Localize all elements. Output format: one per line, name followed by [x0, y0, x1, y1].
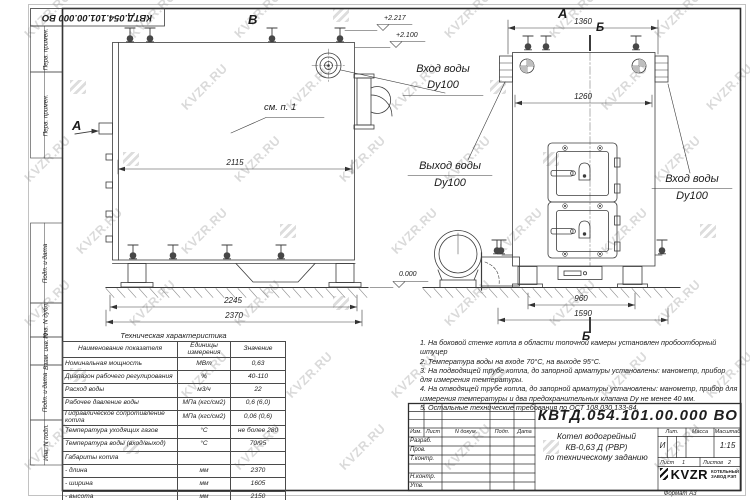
sig-prov: Пров.	[410, 447, 426, 453]
product-line-3: по техническому заданию	[537, 452, 656, 463]
spec-cell-9-2: 1605	[231, 478, 286, 491]
dim-2245: 2245	[208, 296, 258, 305]
spec-row-4: Гидравлическое сопротивление котлаМПа (к…	[63, 410, 286, 425]
elevation-2100: +2.100	[396, 32, 418, 39]
valve-icon	[631, 36, 641, 50]
spec-header-1: Единицы измерения	[178, 342, 231, 358]
spec-cell-4-2: 0,06 (0,6)	[231, 410, 286, 425]
th-podp: Подп.	[490, 429, 514, 435]
elevation-0000: 0.000	[399, 271, 417, 278]
valve-icon	[657, 240, 667, 254]
kvzr-logo-text: KVZR	[671, 467, 708, 482]
dimensions-and-symbols	[106, 20, 673, 326]
spec-header-0: Наименование показателя	[63, 342, 178, 358]
sig-tkontr: Т.контр.	[410, 456, 434, 462]
spec-cell-9-0: - ширина	[63, 478, 178, 491]
spec-row-10: - высотамм2150	[63, 491, 286, 500]
kvzr-logo-bars-icon	[660, 468, 668, 480]
sig-nkontr: Н.контр.	[410, 474, 435, 480]
spec-table-title: Техническая характеристика	[62, 331, 285, 340]
spec-row-0: Номинальная мощностьМВт0,63	[63, 358, 286, 371]
spec-cell-1-2: 40-110	[231, 371, 286, 384]
spec-cell-5-1: °С	[178, 425, 231, 438]
spec-cell-4-0: Гидравлическое сопротивление котла	[63, 410, 178, 425]
note-4: 4. На отводящей трубе котла, до запорной…	[420, 384, 738, 403]
outlet-dn: Dy100	[408, 177, 492, 189]
th-list: Лист	[424, 429, 442, 435]
blower-linework	[435, 231, 520, 291]
spec-cell-3-0: Рабочее давление воды	[63, 397, 178, 410]
elevation-2217: +2.217	[384, 15, 406, 22]
valve-icon	[128, 245, 138, 259]
top-stamp-text: КВТД.054.101.00.000 ВО	[42, 12, 152, 23]
spec-row-5: Температура уходящих газов°Сне более 280	[63, 425, 286, 438]
spec-row-6: Температура воды (вход/выход)°С70/95	[63, 438, 286, 451]
valve-icon	[222, 245, 232, 259]
titleblock-product-name: Котел водогрейный КВ-0,63 Д (РВР) по тех…	[537, 431, 656, 463]
dim-2370: 2370	[209, 311, 259, 320]
top-stamp-doc-number: КВТД.054.101.00.000 ВО	[30, 8, 165, 26]
dim-1360: 1360	[558, 17, 608, 26]
spec-row-1: Диапазон рабочего регулирования%40-110	[63, 371, 286, 384]
lit-value: И	[658, 441, 667, 450]
margin-strip-6: Подп. и дата	[30, 365, 62, 420]
spec-cell-2-2: 22	[231, 384, 286, 397]
note-1: 1. На боковой стенке котла в области топ…	[420, 338, 738, 357]
margin-strip-2: Перв. примен.	[30, 72, 62, 158]
kvzr-logo: KVZR КОТЕЛЬНЫЙ ЗАВОД РЭП	[660, 459, 739, 489]
spec-cell-3-2: 0,6 (6,0)	[231, 397, 286, 410]
view-label-b: В	[248, 12, 257, 27]
technical-notes: 1. На боковой стенке котла в области топ…	[420, 338, 738, 412]
spec-cell-5-0: Температура уходящих газов	[63, 425, 178, 438]
inlet-label-left-view: Вход воды	[401, 63, 485, 75]
note-3: 3. На подводящей трубе котла, до запорно…	[420, 366, 738, 385]
spec-cell-7-2	[231, 451, 286, 464]
margin-strip-3: Подп. и дата	[30, 223, 62, 303]
valve-icon	[335, 28, 345, 42]
spec-cell-2-1: м3/ч	[178, 384, 231, 397]
dim-1590: 1590	[558, 309, 608, 318]
valve-icon	[125, 28, 135, 42]
spec-cell-4-1: МПа (кгс/см2)	[178, 410, 231, 425]
spec-cell-7-0: Габариты котла	[63, 451, 178, 464]
spec-cell-5-2: не более 280	[231, 425, 286, 438]
valve-icon	[523, 36, 533, 50]
th-data: Дата	[514, 429, 535, 435]
scale-value: 1:15	[714, 441, 741, 450]
margin-strip-7: Инв. N подл.	[30, 420, 62, 465]
dim-1260: 1260	[558, 92, 608, 101]
valve-icon	[541, 36, 551, 50]
drawing-sheet: KVZR.RUKVZR.RUKVZR.RUKVZR.RUKVZR.RUKVZR.…	[0, 0, 750, 500]
th-lit: Лит.	[658, 429, 686, 435]
spec-cell-0-2: 0,63	[231, 358, 286, 371]
valve-icon	[276, 245, 286, 259]
spec-cell-6-1: °С	[178, 438, 231, 451]
margin-strip-5: Взам. инв. N	[30, 337, 62, 365]
valve-icon	[168, 245, 178, 259]
outlet-label: Выход воды	[408, 160, 492, 172]
spec-cell-2-0: Расход воды	[63, 384, 178, 397]
inlet-dn-left-view: Dy100	[401, 79, 485, 91]
spec-row-7: Габариты котла	[63, 451, 286, 464]
dim-2115: 2115	[210, 158, 260, 167]
spec-cell-10-0: - высота	[63, 491, 178, 500]
spec-row-9: - ширинамм1605	[63, 478, 286, 491]
spec-row-3: Рабочее давление водыМПа (кгс/см2)0,6 (6…	[63, 397, 286, 410]
margin-strip-1: Перв. примен.	[30, 26, 62, 72]
spec-row-2: Расход водым3/ч22	[63, 384, 286, 397]
valve-icon	[267, 28, 277, 42]
format-note: Формат А3	[620, 491, 740, 497]
spec-cell-8-1: мм	[178, 465, 231, 478]
th-masshtab: Масштаб	[714, 429, 741, 435]
spec-header-2: Значение	[231, 342, 286, 358]
titleblock-doc-number: КВТД.054.101.00.000 ВО	[537, 405, 739, 426]
spec-row-8: - длинамм2370	[63, 465, 286, 478]
product-line-2: КВ-0,63 Д (РВР)	[537, 442, 656, 453]
see-note-label: см. п. 1	[264, 102, 296, 113]
spec-cell-8-0: - длина	[63, 465, 178, 478]
spec-cell-7-1	[178, 451, 231, 464]
th-ndokum: N докум.	[442, 429, 490, 435]
spec-cell-1-1: %	[178, 371, 231, 384]
view-arrow-label-a: А	[72, 118, 81, 133]
dim-960: 960	[556, 294, 606, 303]
valve-icon	[145, 28, 155, 42]
spec-cell-0-0: Номинальная мощность	[63, 358, 178, 371]
spec-cell-9-1: мм	[178, 478, 231, 491]
spec-cell-1-0: Диапазон рабочего регулирования	[63, 371, 178, 384]
product-line-1: Котел водогрейный	[537, 431, 656, 442]
spec-cell-3-1: МПа (кгс/см2)	[178, 397, 231, 410]
spec-cell-10-1: мм	[178, 491, 231, 500]
sig-utv: Утв.	[410, 483, 424, 489]
spec-cell-6-2: 70/95	[231, 438, 286, 451]
note-2: 2. Температура воды на входе 70°С, на вы…	[420, 357, 738, 366]
door-bolts	[563, 146, 603, 257]
spec-cell-0-1: МВт	[178, 358, 231, 371]
kvzr-logo-caption: КОТЕЛЬНЫЙ ЗАВОД РЭП	[711, 469, 739, 479]
inlet-dn-right-view: Dy100	[650, 190, 734, 202]
spec-table: Наименование показателяЕдиницы измерения…	[62, 341, 286, 500]
spec-cell-8-2: 2370	[231, 465, 286, 478]
spec-cell-6-0: Температура воды (вход/выход)	[63, 438, 178, 451]
inlet-label-right-view: Вход воды	[650, 173, 734, 185]
sig-razrab: Разраб.	[410, 438, 432, 444]
spec-table-header-row: Наименование показателяЕдиницы измерения…	[63, 342, 286, 358]
th-massa: Масса	[686, 429, 714, 435]
spec-cell-10-2: 2150	[231, 491, 286, 500]
th-izm: Изм.	[408, 429, 424, 435]
